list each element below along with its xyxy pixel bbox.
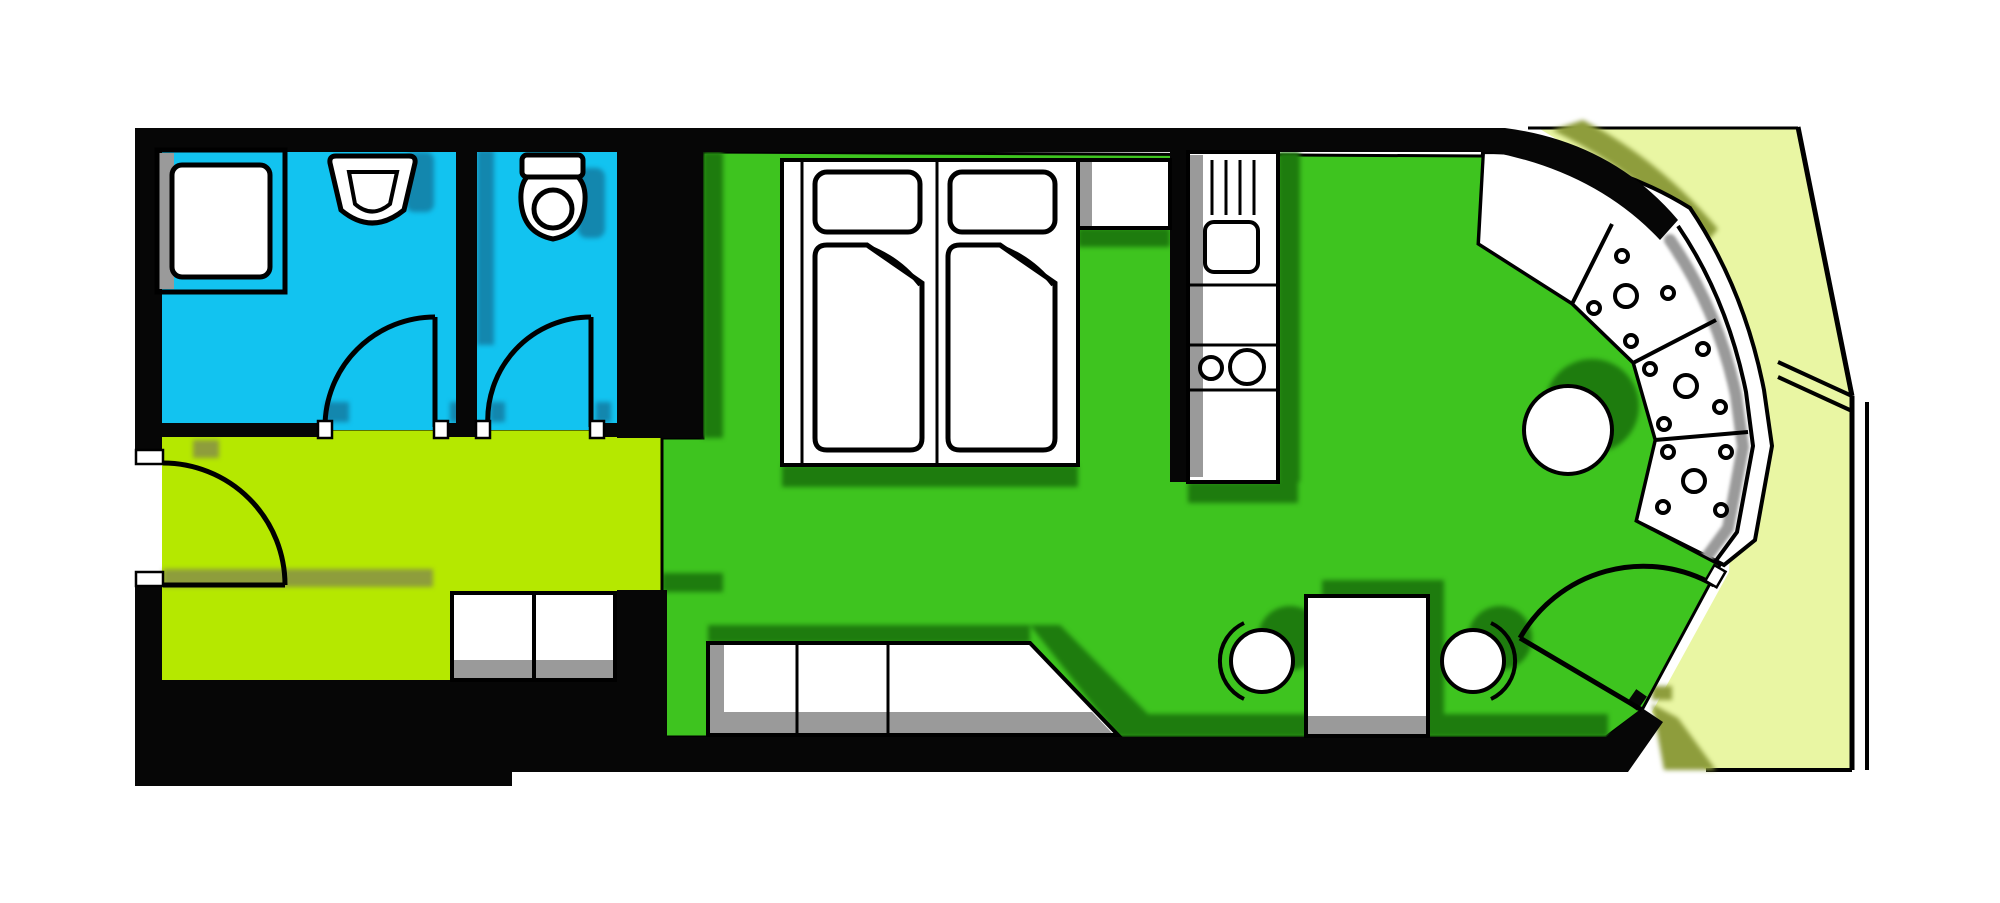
counter-dot <box>1658 418 1670 430</box>
kitchen-wall <box>1170 152 1188 482</box>
kitchen-shadow <box>1278 152 1300 482</box>
wall-shadow <box>662 573 723 592</box>
chair-seat <box>1442 630 1504 692</box>
toilet <box>521 155 585 239</box>
shower-base <box>172 165 270 277</box>
dining-table-shade <box>1308 716 1426 734</box>
bed2-pillow <box>950 172 1055 232</box>
counter-dot <box>1616 250 1628 262</box>
left-wall-lower <box>135 583 162 686</box>
wash-basin <box>330 156 415 223</box>
bench-shadow <box>708 625 1030 643</box>
jamb-tick <box>318 421 332 438</box>
beds <box>782 160 1078 465</box>
counter-dot <box>1720 446 1732 458</box>
chair-seat <box>1231 630 1293 692</box>
counter-dot <box>1662 287 1674 299</box>
kitchen-counter-shade <box>1190 155 1203 477</box>
kitchenette <box>1188 152 1278 482</box>
door-stop <box>490 402 505 422</box>
shelf-shadow <box>1078 228 1170 247</box>
nightstand-shade <box>1080 162 1092 226</box>
wall-shadow <box>703 152 723 438</box>
counter-dot <box>1697 343 1709 355</box>
jamb-tick <box>476 421 490 438</box>
shower <box>157 150 285 292</box>
counter-dot <box>1588 302 1600 314</box>
counter-dot <box>1714 401 1726 413</box>
counter-dot <box>1644 363 1656 375</box>
jamb-tick <box>590 421 604 438</box>
bath-south-wall-a <box>135 423 330 437</box>
wall-shadow-on-blue <box>477 150 494 345</box>
bed-shadow <box>782 465 1078 487</box>
jamb-shadow <box>193 440 219 458</box>
bed1-blanket <box>815 245 922 450</box>
bath-wc-divider-wall <box>456 128 477 437</box>
bench-shade-left <box>710 645 724 733</box>
toilet-tank <box>522 155 583 177</box>
floor-plan <box>0 0 2000 903</box>
dining-table <box>1306 596 1428 736</box>
counter-dot <box>1615 285 1637 307</box>
kitchen-sink <box>1205 222 1258 272</box>
kitchen-shadow <box>1188 482 1298 503</box>
round-table <box>1524 386 1612 474</box>
basin-inner <box>349 172 397 212</box>
bed1-pillow <box>815 172 920 232</box>
counter-dot <box>1657 501 1669 513</box>
toilet-bowl-inner <box>534 190 572 228</box>
wc-bedroom-wall-block <box>617 128 703 438</box>
counter-dot <box>1683 470 1705 492</box>
wardrobe <box>452 593 615 680</box>
counter-dot <box>1625 335 1637 347</box>
counter-dot <box>1715 504 1727 516</box>
jamb-tick <box>136 450 163 464</box>
stove-burner-large <box>1230 350 1264 384</box>
bench-shade-bottom <box>724 712 1112 733</box>
door-stop <box>596 402 611 422</box>
counter-dot <box>1662 446 1674 458</box>
jamb-tick <box>136 572 163 586</box>
floor-plan-canvas <box>0 0 2000 903</box>
bed2-blanket <box>948 245 1055 450</box>
stove-burner-small <box>1200 357 1222 379</box>
jamb-tick <box>434 421 448 438</box>
counter-dot <box>1675 375 1697 397</box>
wardrobe-side-wall <box>617 590 667 682</box>
